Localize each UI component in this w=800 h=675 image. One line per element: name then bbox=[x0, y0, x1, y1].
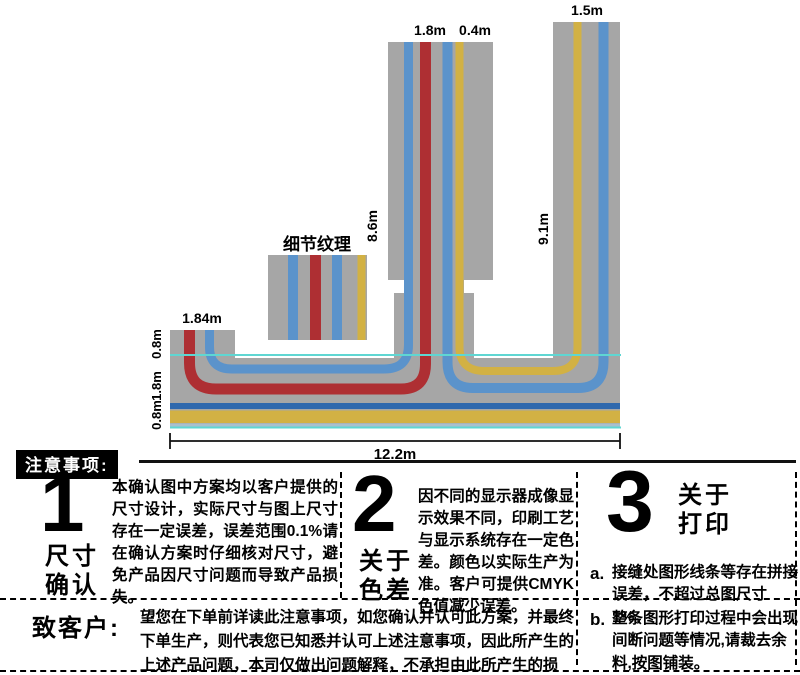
section2-title: 关于 色差 bbox=[344, 548, 428, 606]
section1-title: 尺寸 确认 bbox=[30, 543, 114, 601]
texture-title: 细节纹理 bbox=[283, 234, 351, 254]
band-stripes bbox=[170, 403, 620, 427]
dim-bar1-extra: 0.4m bbox=[459, 22, 491, 38]
pale-stripe bbox=[170, 424, 620, 427]
dim-bar2-width: 1.5m bbox=[571, 2, 603, 18]
section2-body: 因不同的显示器成像显示效果不同，印刷工艺与显示系统存在一定色差。颜色以实际生产为… bbox=[418, 486, 574, 618]
section1-title-line2: 确认 bbox=[30, 572, 114, 601]
section1-body: 本确认图中方案均以客户提供的尺寸设计，实际尺寸与图上尺寸存在一定误差，误差范围0… bbox=[112, 477, 338, 609]
confirmation-sheet: 1.8m 0.4m 1.5m 1.84m 8.6m 9.1m 0.8m 1.8m… bbox=[0, 0, 800, 675]
section3-title: 关于 打印 bbox=[678, 482, 732, 540]
bar2 bbox=[553, 22, 620, 358]
section2-number: 2 bbox=[352, 466, 395, 542]
section3-title-line2: 打印 bbox=[678, 511, 732, 540]
bar1-upper bbox=[388, 42, 493, 280]
print-note-b: b. 整条图形打印过程中会出现间断问题等情况,请裁去余料,按图铺装。 bbox=[590, 608, 798, 675]
print-note-b-label: b. bbox=[590, 608, 612, 675]
section1-number: 1 bbox=[40, 466, 83, 542]
customer-note-title: 致客户: bbox=[32, 608, 120, 643]
section2-title-line1: 关于 bbox=[344, 548, 428, 577]
dim-bar1-main: 1.8m bbox=[414, 22, 446, 38]
print-note-b-text: 整条图形打印过程中会出现间断问题等情况,请裁去余料,按图铺装。 bbox=[612, 608, 798, 675]
divider-col1-col2 bbox=[340, 472, 342, 598]
yellow-band bbox=[170, 411, 620, 424]
customer-note-body: 望您在下单前详读此注意事项，如您确认并认可此方案，并最终下单生产，则代表您已知悉… bbox=[140, 606, 574, 675]
divider-col2-col3 bbox=[576, 472, 578, 665]
dim-side-bottom: 0.8m bbox=[149, 400, 164, 430]
layout-diagram: 1.8m 0.4m 1.5m 1.84m 8.6m 9.1m 0.8m 1.8m… bbox=[0, 0, 800, 465]
section2-title-line2: 色差 bbox=[344, 577, 428, 606]
section3-title-line1: 关于 bbox=[678, 482, 732, 511]
dim-bar1-height: 8.6m bbox=[364, 210, 380, 242]
section1-title-line1: 尺寸 bbox=[30, 543, 114, 572]
section3-number: 3 bbox=[606, 462, 652, 544]
left-stub bbox=[170, 330, 235, 358]
dim-bar2-height: 9.1m bbox=[535, 213, 551, 245]
dim-side-mid: 1.8m bbox=[149, 371, 164, 401]
dim-side-top: 0.8m bbox=[149, 329, 164, 359]
darkblue-stripe bbox=[170, 403, 620, 409]
notice-header-rule bbox=[139, 460, 796, 463]
dim-stub-width: 1.84m bbox=[182, 310, 222, 326]
